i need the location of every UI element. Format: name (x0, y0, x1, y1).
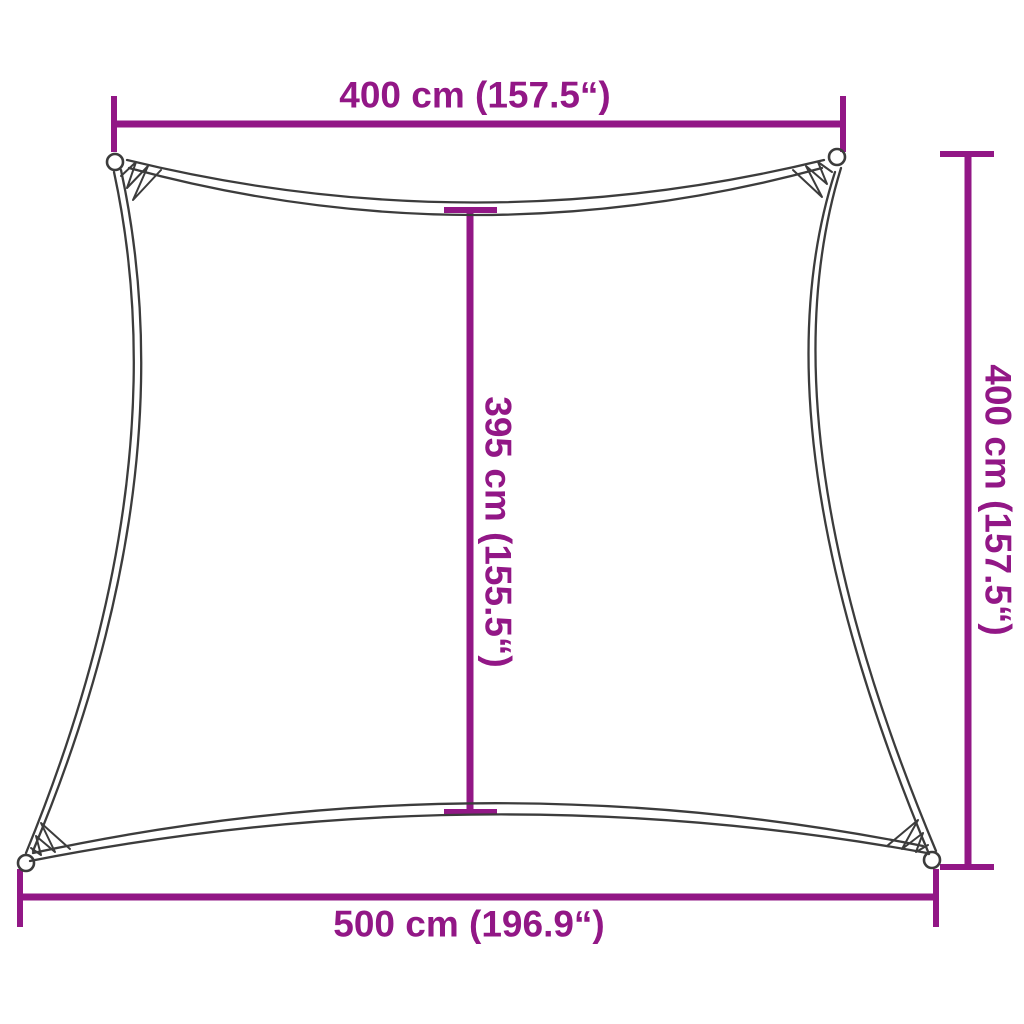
dimension-label-bottom-width: 500 cm (196.9“) (333, 906, 605, 943)
lacing-top-right (793, 162, 832, 197)
corner-ring-top-right (829, 149, 845, 165)
dimension-label-right-height: 400 cm (157.5“) (980, 364, 1017, 636)
corner-ring-top-left (107, 154, 123, 170)
dimension-label-top-width: 400 cm (157.5“) (339, 77, 611, 114)
shade-sail-diagram: 400 cm (157.5“) 400 cm (157.5“) 395 cm (… (0, 0, 1024, 1024)
corner-ring-bottom-right (924, 852, 940, 868)
corner-ring-bottom-left (18, 855, 34, 871)
dimension-label-center-height: 395 cm (155.5“) (480, 396, 517, 668)
